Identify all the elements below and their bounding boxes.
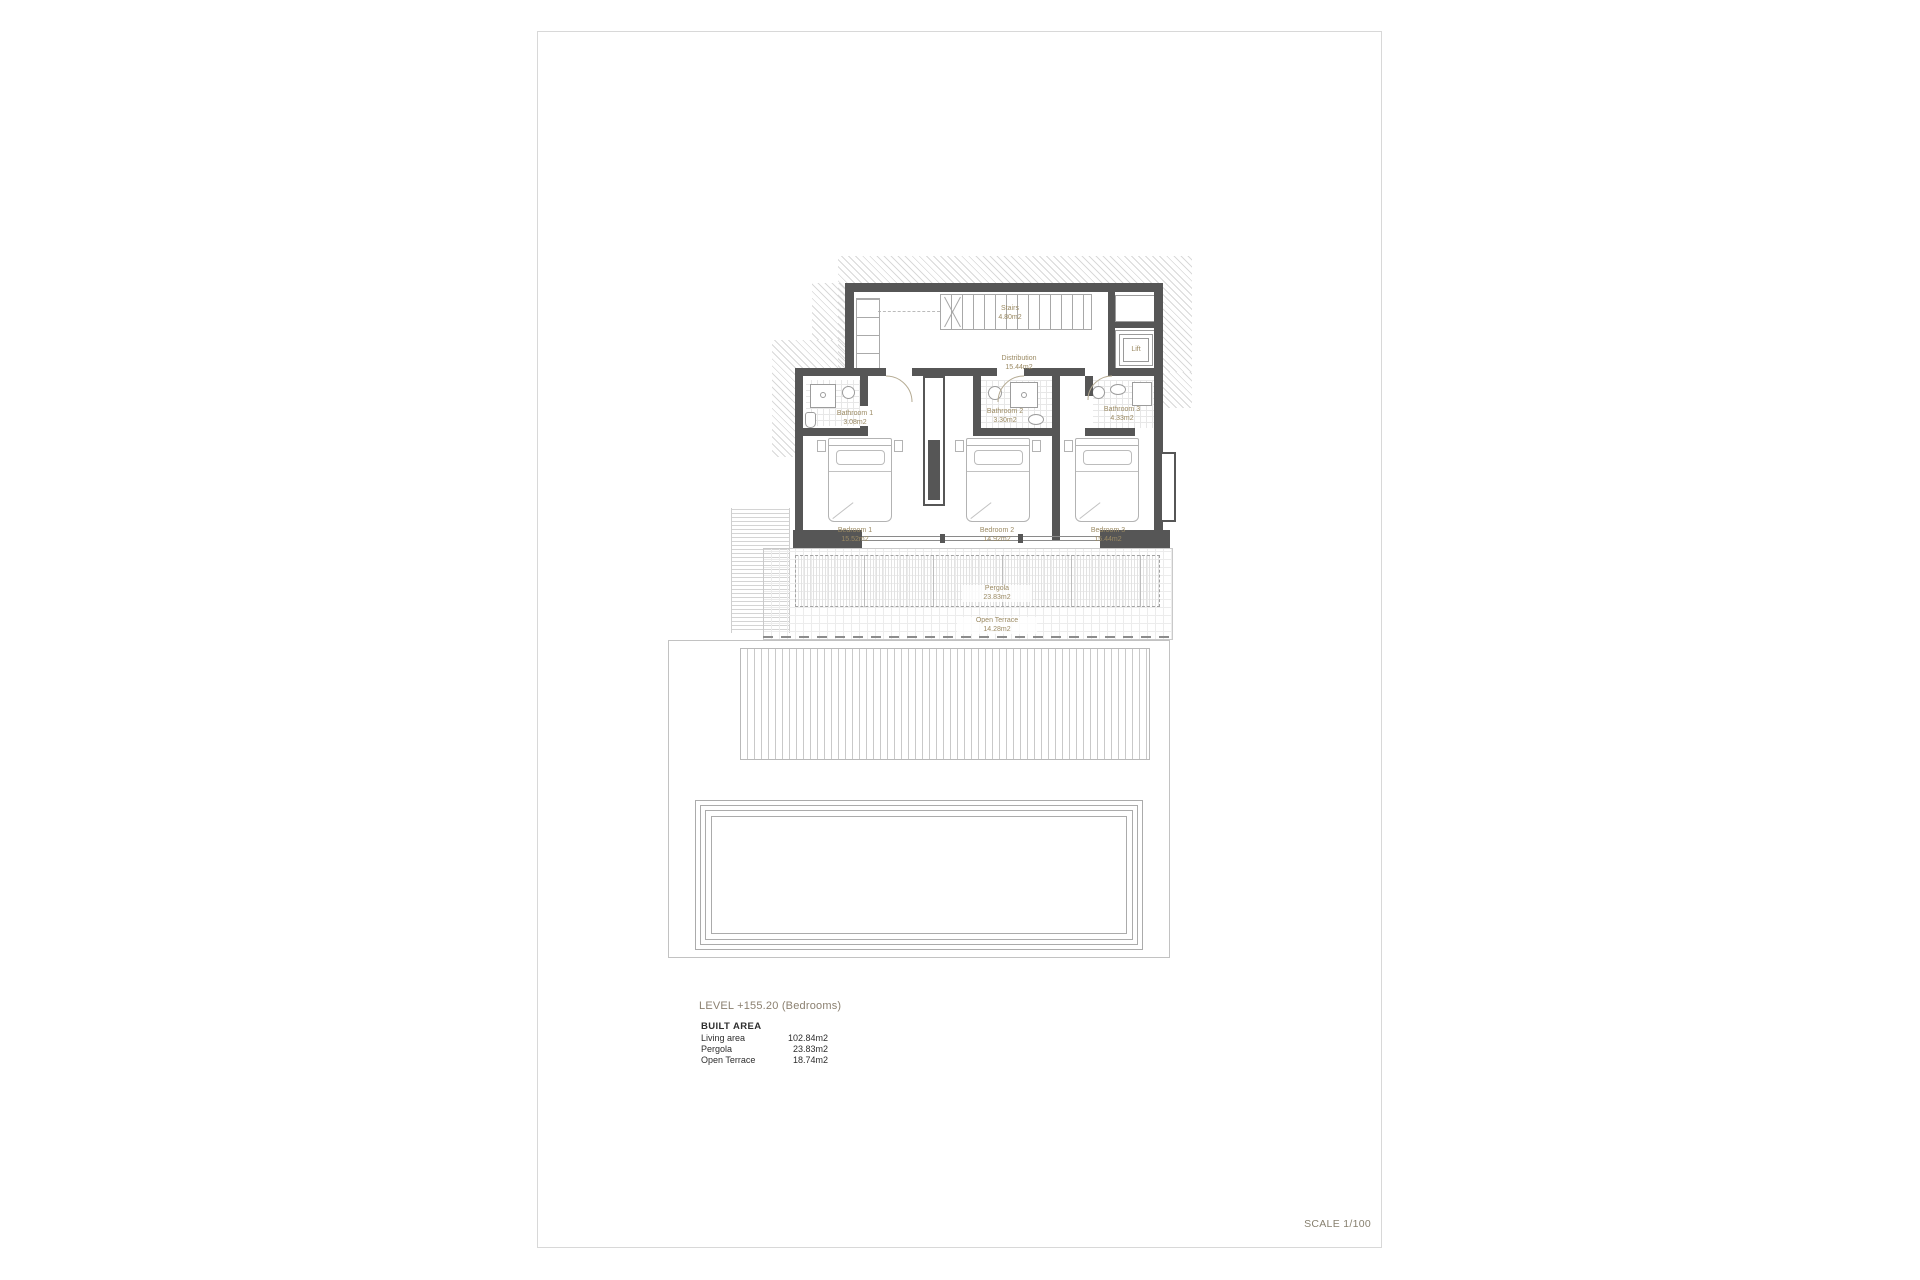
scale-note: SCALE 1/100: [1271, 1218, 1371, 1230]
wall-left: [795, 368, 803, 548]
label-bathroom-1: Bathroom 1 3.08m2: [820, 410, 890, 427]
room-name: Bedroom 1: [820, 527, 890, 536]
room-name: Distribution: [984, 355, 1054, 364]
room-name: Bedroom 2: [962, 527, 1032, 536]
shower-drain-icon: [820, 392, 826, 398]
wall-bath1-right: [860, 376, 868, 406]
room-area: 4.80m2: [975, 314, 1045, 323]
room-name: Bathroom 2: [970, 408, 1040, 417]
wall-lift-divider: [1108, 322, 1154, 328]
drawing-canvas: Stairs 4.80m2 Distribution 15.44m2 Lift …: [0, 0, 1920, 1280]
pool: [695, 800, 1143, 950]
room-area: 3.08m2: [820, 419, 890, 428]
label-bedroom-2: Bedroom 2 14.92m2: [962, 527, 1032, 544]
built-area-table: Living area 102.84m2 Pergola 23.83m2 Ope…: [701, 1033, 828, 1066]
wall-top: [845, 283, 1163, 292]
area-row: Living area 102.84m2: [701, 1033, 828, 1044]
nightstand: [894, 440, 903, 452]
wardrobe: [856, 298, 880, 372]
area-value: 18.74m2: [793, 1055, 828, 1066]
room-name: Bathroom 3: [1087, 406, 1157, 415]
built-area-heading: BUILT AREA: [701, 1021, 761, 1032]
area-row: Open Terrace 18.74m2: [701, 1055, 828, 1066]
room-name: Stairs: [975, 305, 1045, 314]
section-cut-line: [763, 636, 1173, 638]
room-name: Bedroom 3: [1073, 527, 1143, 536]
wall-upper-left: [845, 283, 854, 372]
label-stairs: Stairs 4.80m2: [975, 305, 1045, 322]
stairs-guide-line: [878, 311, 940, 312]
wall-lift-left: [1108, 292, 1115, 372]
room-name: Lift: [1116, 346, 1156, 355]
room-name: Pergola: [962, 585, 1032, 594]
window-mullion: [940, 534, 945, 543]
area-label: Pergola: [701, 1044, 732, 1055]
room-area: 14.28m2: [957, 626, 1037, 635]
room-area: 15.44m2: [1073, 536, 1143, 545]
label-bedroom-3: Bedroom 3 15.44m2: [1073, 527, 1143, 544]
window-seat: [1160, 452, 1176, 522]
room-area: 14.92m2: [962, 536, 1032, 545]
nightstand: [1064, 440, 1073, 452]
deck-stripes: [740, 648, 1150, 760]
hatch-zone-left-upper: [812, 283, 845, 340]
room-area: 23.83m2: [962, 594, 1032, 603]
label-bedroom-1: Bedroom 1 15.52m2: [820, 527, 890, 544]
wall-corridor-a: [795, 368, 886, 376]
room-area: 15.52m2: [820, 536, 890, 545]
bed-2: [966, 438, 1030, 522]
area-label: Living area: [701, 1033, 745, 1044]
label-lift: Lift: [1116, 346, 1156, 355]
area-value: 23.83m2: [793, 1044, 828, 1055]
label-bathroom-2: Bathroom 2 3.30m2: [970, 408, 1040, 425]
closet-above-lift: [1115, 295, 1155, 322]
label-bathroom-3: Bathroom 3 4.33m2: [1087, 406, 1157, 423]
nightstand: [955, 440, 964, 452]
room-area: 4.33m2: [1087, 415, 1157, 424]
nightstand: [1032, 440, 1041, 452]
room-name: Open Terrace: [957, 617, 1037, 626]
nightstand: [817, 440, 826, 452]
sink-1: [842, 386, 855, 399]
label-open-terrace: Open Terrace 14.28m2: [957, 617, 1037, 634]
door-arcs: [880, 370, 1180, 440]
area-value: 102.84m2: [788, 1033, 828, 1044]
room-area: 15.44m2: [984, 364, 1054, 373]
room-area: 3.30m2: [970, 417, 1040, 426]
room-name: Bathroom 1: [820, 410, 890, 419]
level-title: LEVEL +155.20 (Bedrooms): [699, 1000, 841, 1012]
toilet-1: [805, 412, 816, 428]
closet-column-fill: [928, 440, 940, 500]
area-label: Open Terrace: [701, 1055, 755, 1066]
label-pergola: Pergola 23.83m2: [962, 585, 1032, 602]
bed-1: [828, 438, 892, 522]
bed-3: [1075, 438, 1139, 522]
wall-bath1-bottom: [803, 428, 868, 436]
area-row: Pergola 23.83m2: [701, 1044, 828, 1055]
label-distribution: Distribution 15.44m2: [984, 355, 1054, 372]
